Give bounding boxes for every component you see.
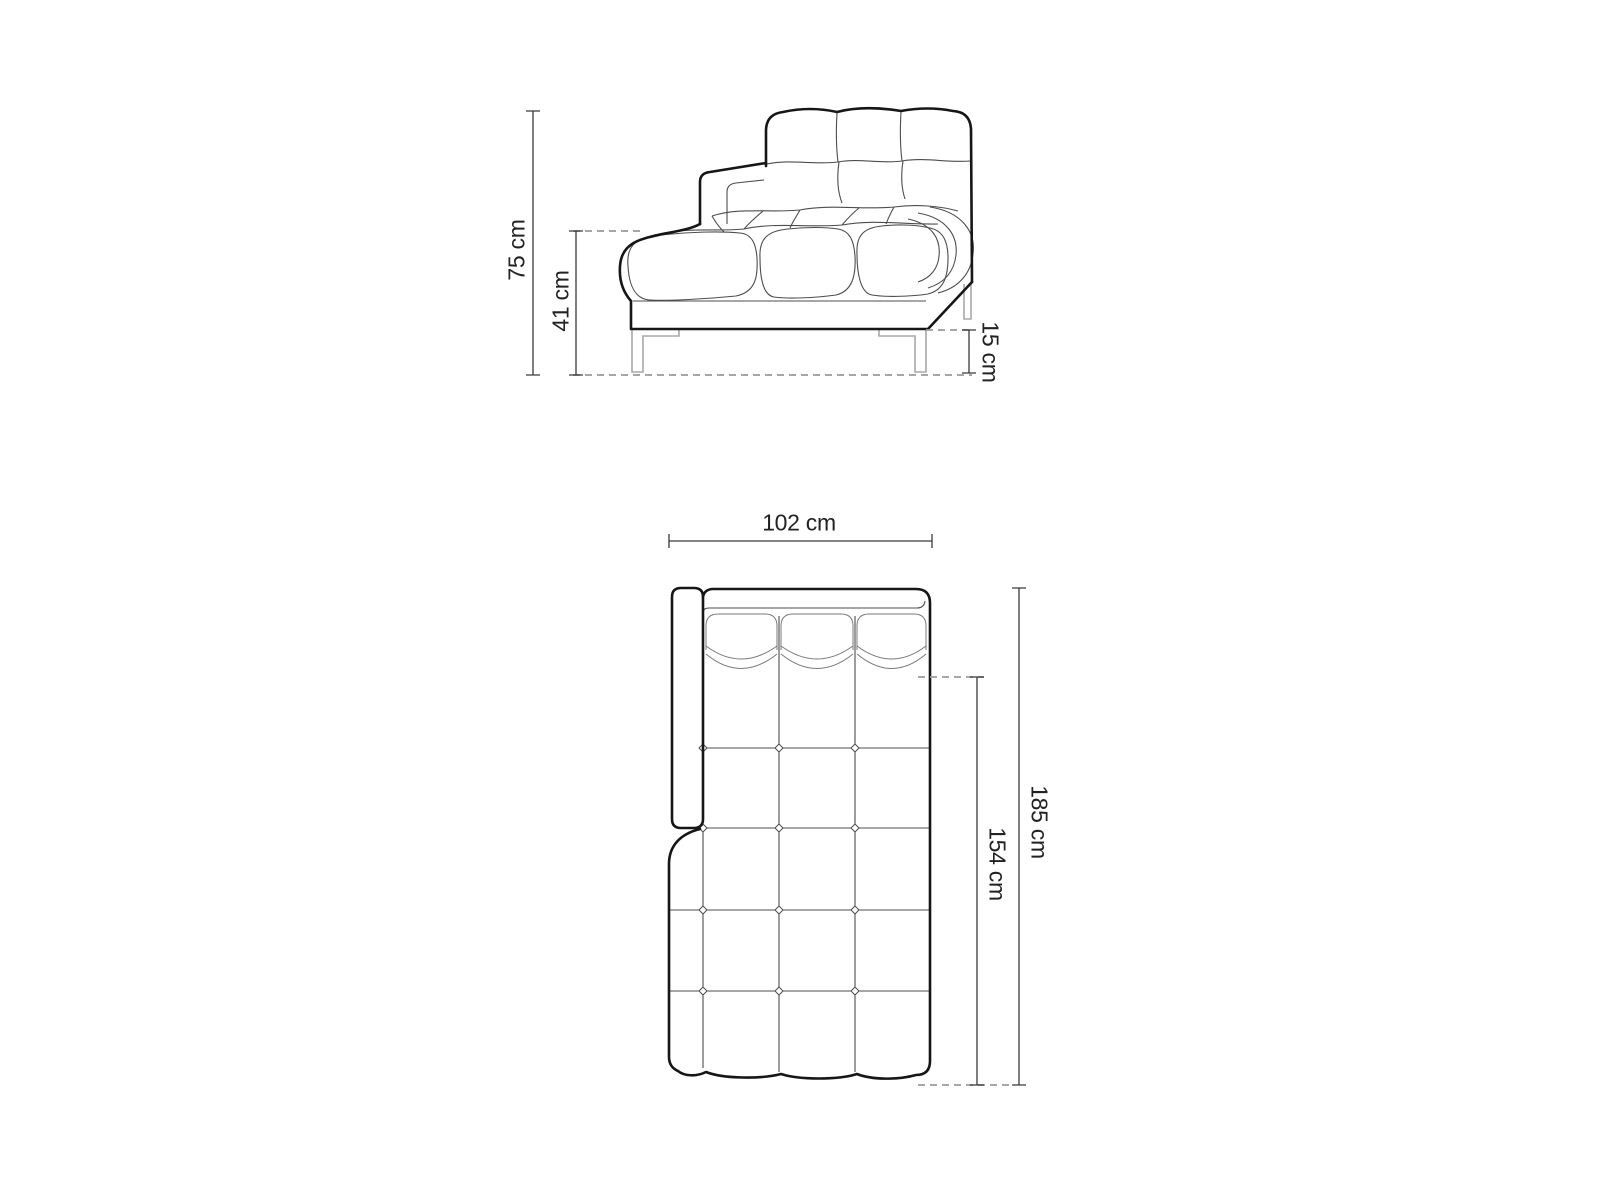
dimension-label-width: 102 cm [762,510,836,537]
dimension-label-leg-height: 15 cm [977,321,1004,382]
dimension-line-overall-depth [1012,588,1026,1085]
furniture-dimension-diagram: 75 cm 41 cm 15 cm 102 cm 185 cm 154 cm [0,0,1600,1200]
dimension-label-overall-height: 75 cm [504,219,531,280]
sofa-plan-seams [669,601,930,1072]
dimension-line-leg-height [962,330,976,373]
dimension-label-seat-depth: 154 cm [984,827,1011,901]
plan-view-dimension-lines [669,534,1026,1085]
sofa-side-outline [620,108,972,329]
sofa-plan-outline [669,588,930,1079]
sofa-plan-view [669,534,1026,1085]
dimension-label-overall-depth: 185 cm [1026,785,1053,859]
sofa-side-seams [628,112,974,301]
dimension-line-seat-depth [970,677,984,1085]
sofa-side-view [526,108,976,375]
dimension-label-seat-height: 41 cm [548,270,575,331]
sofa-line-art [0,0,1600,1200]
